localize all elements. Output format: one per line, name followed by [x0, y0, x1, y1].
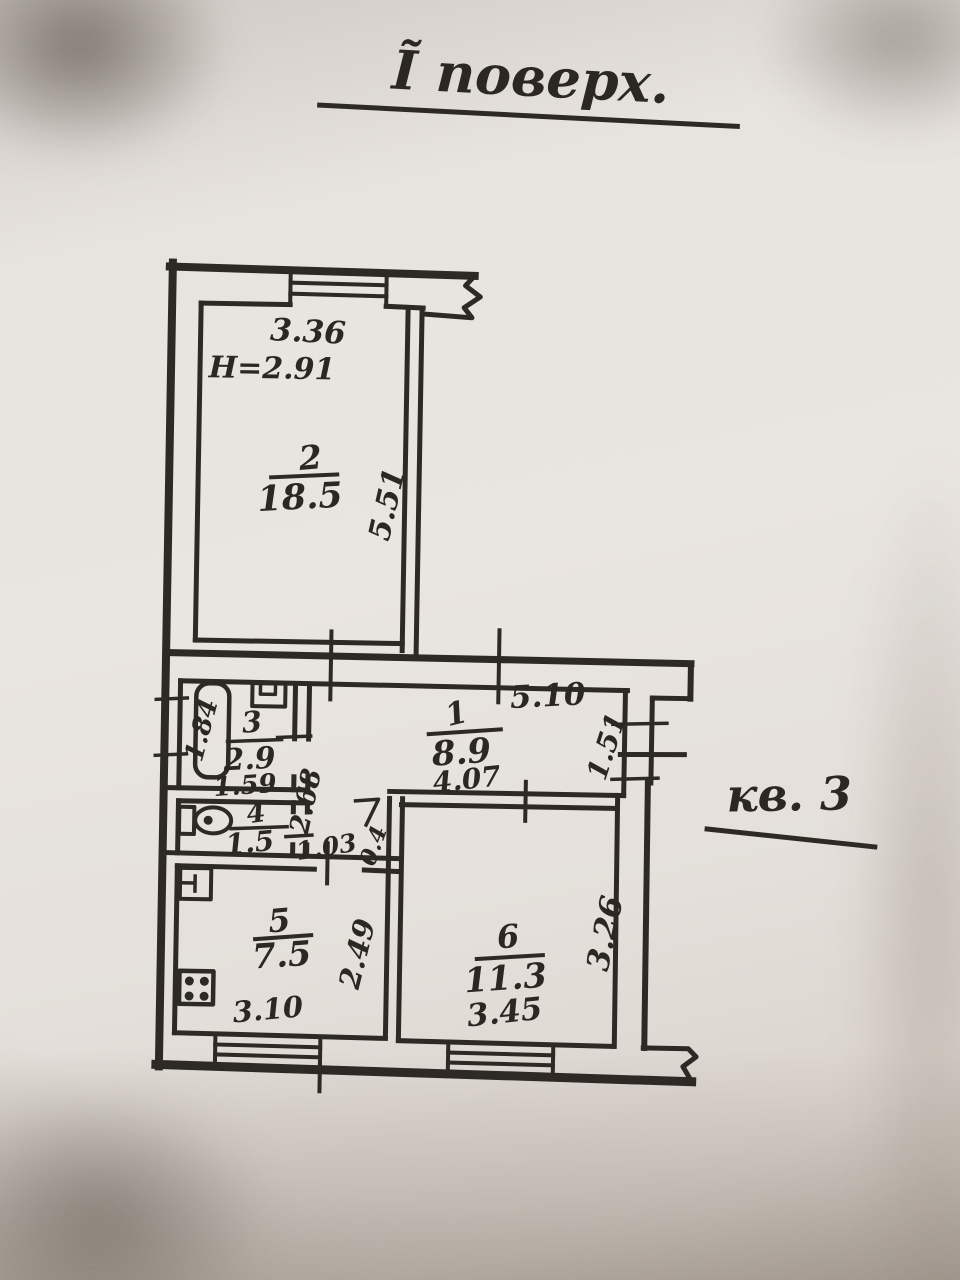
- room3-dim-width: 1.59: [212, 769, 277, 803]
- room2-dim-width: 3.36: [269, 312, 346, 352]
- room5-area: 7.5: [251, 934, 313, 978]
- bay-sill: [620, 753, 684, 755]
- room3-number: 3: [240, 704, 263, 740]
- bath-right-inner-a: [295, 685, 296, 739]
- wall-break-top-right: [423, 275, 481, 318]
- room5-dim-width: 3.10: [231, 989, 304, 1029]
- mid-wall-thick: [166, 653, 691, 664]
- corridor-dim: 2.68: [284, 766, 328, 838]
- kitchen-left-inner: [174, 866, 177, 1033]
- room1-number: 1: [442, 694, 472, 734]
- stove-burner-4: [200, 992, 209, 1001]
- window-line-2: [215, 1054, 320, 1057]
- bath-right-outer-a: [309, 685, 310, 739]
- wall-left: [159, 263, 173, 1067]
- room2-inner-left: [195, 303, 201, 640]
- room2-right-wall-outer: [416, 311, 422, 657]
- wall-top: [170, 267, 475, 276]
- hall-bottom-line-1: [390, 791, 624, 795]
- room2-number: 2: [296, 437, 323, 478]
- window-cap-right: [553, 1045, 554, 1075]
- stove-burner-2: [200, 977, 209, 986]
- kitchen-sink-tap: [180, 876, 195, 891]
- photographed-paper: Ĩ поверх.: [0, 0, 960, 1280]
- bay-lintel: [652, 698, 690, 699]
- room5-dim-depth: 2.49: [332, 915, 382, 993]
- toilet-drain: [204, 816, 213, 825]
- room2-height-note: H=2.91: [207, 350, 335, 387]
- room2-area: 18.5: [256, 475, 343, 520]
- kitchen-sink: [180, 868, 212, 900]
- floor-title: Ĩ поверх.: [388, 37, 671, 116]
- stove: [179, 971, 214, 1005]
- bay-tick-lower: [612, 777, 658, 780]
- mid-wall-tick-2: [498, 630, 499, 702]
- room6-dim-width: 3.45: [465, 991, 544, 1035]
- bath-sink-tap: [260, 683, 275, 694]
- room6-right-outer: [643, 783, 649, 1048]
- toilet-tank: [179, 807, 194, 834]
- apartment-label-block: кв. 3: [707, 764, 876, 847]
- room6-bottom-inner: [398, 1041, 613, 1047]
- bathtub-dim: 1.84: [179, 696, 224, 765]
- stove-body: [179, 971, 214, 1005]
- room5-6-wall-right: [398, 799, 402, 1039]
- room2-inner-bottom: [195, 640, 402, 644]
- middle-wall-band: [165, 625, 691, 706]
- mid-wall-tick-1: [330, 631, 331, 699]
- bay-mid-vertical: [651, 698, 652, 783]
- window-cap-left: [290, 270, 291, 305]
- hall-bottom-tick: [525, 782, 526, 821]
- room6-dim-depth: 3.26: [580, 893, 631, 974]
- apartment-label-underline: [707, 829, 875, 847]
- window-line-1: [448, 1053, 553, 1056]
- hall-bottom-line-2: [401, 805, 617, 809]
- window-line-2: [290, 294, 386, 297]
- bay-outer-right: [690, 664, 691, 699]
- wall-bottom: [156, 1064, 692, 1081]
- kitchen-top-line-2b: [364, 870, 400, 872]
- title-block: Ĩ поверх.: [319, 36, 738, 126]
- kitchen-bottom-inner: [174, 1033, 385, 1039]
- room4-area: 1.5: [224, 824, 275, 861]
- window-cap-left: [448, 1043, 449, 1073]
- apartment-label: кв. 3: [726, 766, 852, 822]
- bath-sink: [252, 683, 285, 707]
- bottom-wall-tick: [319, 1059, 320, 1091]
- window-line-2: [448, 1063, 553, 1066]
- bath-door-tick: [278, 735, 311, 738]
- room6-door-mark: [355, 799, 378, 825]
- floor-plan-drawing: Ĩ поверх.: [0, 0, 960, 1280]
- room6-number: 6: [495, 917, 520, 957]
- stove-burner-3: [185, 991, 194, 1000]
- window-line-1: [215, 1044, 320, 1047]
- room2-inner-top-left: [201, 303, 290, 305]
- left-wall-tick-1: [156, 697, 187, 700]
- window-line-1: [291, 283, 387, 286]
- room2-inner-top-right: [386, 306, 423, 308]
- window-cap-left: [215, 1034, 216, 1065]
- room1-dim-top: 5.10: [509, 676, 587, 716]
- stove-burner-1: [185, 976, 194, 985]
- window-cap-right: [386, 273, 387, 306]
